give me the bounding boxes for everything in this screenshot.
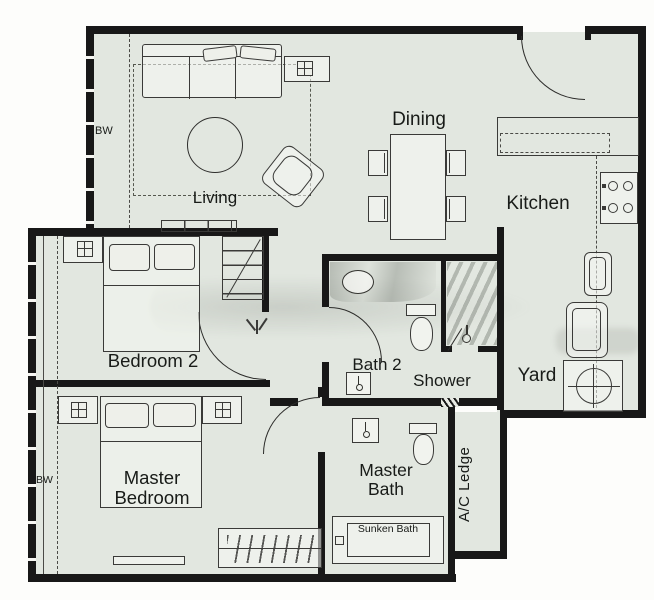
- shower-stall-glass: [447, 262, 497, 345]
- bedroom2-label: Bedroom 2: [94, 350, 212, 372]
- dining-chair: [446, 196, 466, 222]
- sofa-cushion: [202, 45, 237, 62]
- blanket-line: [101, 441, 201, 442]
- threshold-hatch: [441, 398, 459, 407]
- shelf-diagonal-line: [226, 239, 261, 298]
- sofa: [142, 44, 282, 98]
- bay-window-wall: [28, 228, 36, 582]
- dining-label: Dining: [384, 109, 454, 131]
- blanket-line: [104, 285, 199, 286]
- kitchen-counter: [497, 117, 639, 156]
- bath2-sink-basin: [342, 270, 374, 294]
- wall: [478, 346, 497, 352]
- lamp-icon: [215, 402, 231, 418]
- floor-plan: Living: [0, 0, 654, 600]
- nightstand: [63, 236, 103, 263]
- lamp-icon: [77, 241, 93, 257]
- hanger-rail-icon: [227, 535, 315, 563]
- pillow: [153, 403, 196, 427]
- tv-console: [161, 220, 237, 232]
- master-bedroom-label: Master Bedroom: [92, 468, 212, 508]
- yard-label: Yard: [511, 365, 563, 387]
- shower-partition-wall: [441, 261, 446, 346]
- washing-machine: [563, 360, 623, 412]
- bay-window-label: BW: [95, 125, 129, 137]
- master-bath-sink: [352, 418, 379, 443]
- wall: [322, 254, 497, 261]
- wall: [500, 410, 507, 558]
- wall: [86, 26, 523, 34]
- wall: [322, 261, 329, 307]
- wall: [450, 551, 507, 559]
- armchair-seat: [269, 152, 317, 200]
- dining-chair: [368, 196, 388, 222]
- tub-basin: [572, 308, 601, 351]
- bay-window-ledge-line: [43, 236, 44, 574]
- dining-chair: [368, 150, 388, 176]
- room-label: Living: [193, 188, 237, 207]
- wall: [497, 227, 504, 410]
- toilet-tank: [406, 304, 436, 316]
- shower-head-icon: [462, 334, 471, 343]
- wall: [638, 26, 646, 418]
- sunken-bath-tub: Sunken Bath: [332, 516, 444, 564]
- living-room-label-circle: Living: [187, 117, 243, 173]
- bath2-fixture: [346, 372, 371, 395]
- bay-window-wall: [86, 26, 94, 232]
- lamp-icon: [71, 402, 87, 418]
- pillow: [109, 244, 150, 271]
- ac-ledge-label: A/C Ledge: [456, 420, 500, 548]
- toilet-tank: [409, 423, 437, 434]
- bay-window-label: BW: [36, 474, 64, 486]
- stove-knob-icon: [602, 206, 606, 210]
- plant-icon: [246, 314, 268, 340]
- kitchen-sink: [584, 252, 612, 296]
- sofa-cushion: [239, 45, 276, 62]
- shower-label: Shower: [386, 371, 498, 391]
- wall: [34, 380, 270, 387]
- dining-chair: [446, 150, 466, 176]
- wall: [448, 404, 455, 574]
- sunken-bath-label: Sunken Bath: [333, 523, 443, 535]
- stove-burner-icon: [623, 181, 633, 191]
- bedroom2-bed: [103, 236, 200, 352]
- nightstand: [202, 396, 242, 424]
- stove-burner-icon: [623, 203, 633, 213]
- bay-window-dashed-line: [129, 34, 130, 228]
- wardrobe: [218, 528, 322, 568]
- kitchen-label: Kitchen: [499, 193, 577, 215]
- sofa-seat-divider: [189, 56, 190, 99]
- sink-basin: [589, 257, 606, 290]
- stove-burner-icon: [608, 203, 618, 213]
- pillow: [154, 244, 195, 270]
- dining-table: [390, 134, 446, 240]
- wall: [28, 228, 278, 236]
- laundry-tub: [566, 302, 608, 358]
- side-table: [284, 56, 330, 82]
- bed-end-bench: [113, 556, 185, 565]
- washing-machine-cross-line: [593, 364, 594, 408]
- door-jamb: [585, 26, 591, 40]
- stove-burner-icon: [608, 181, 618, 191]
- wall: [28, 574, 456, 582]
- stove-hob: [600, 172, 638, 224]
- wall: [585, 26, 646, 34]
- master-bath-label: Master Bath: [342, 461, 430, 500]
- sofa-seat-divider: [235, 56, 236, 99]
- stove-knob-icon: [602, 184, 606, 188]
- nightstand: [58, 396, 98, 424]
- bath-tap-icon: [335, 536, 344, 545]
- wall: [322, 398, 497, 406]
- pillow: [105, 403, 149, 428]
- lamp-icon: [297, 61, 313, 76]
- wardrobe-shelves: [222, 236, 264, 300]
- toilet-bowl: [410, 317, 433, 351]
